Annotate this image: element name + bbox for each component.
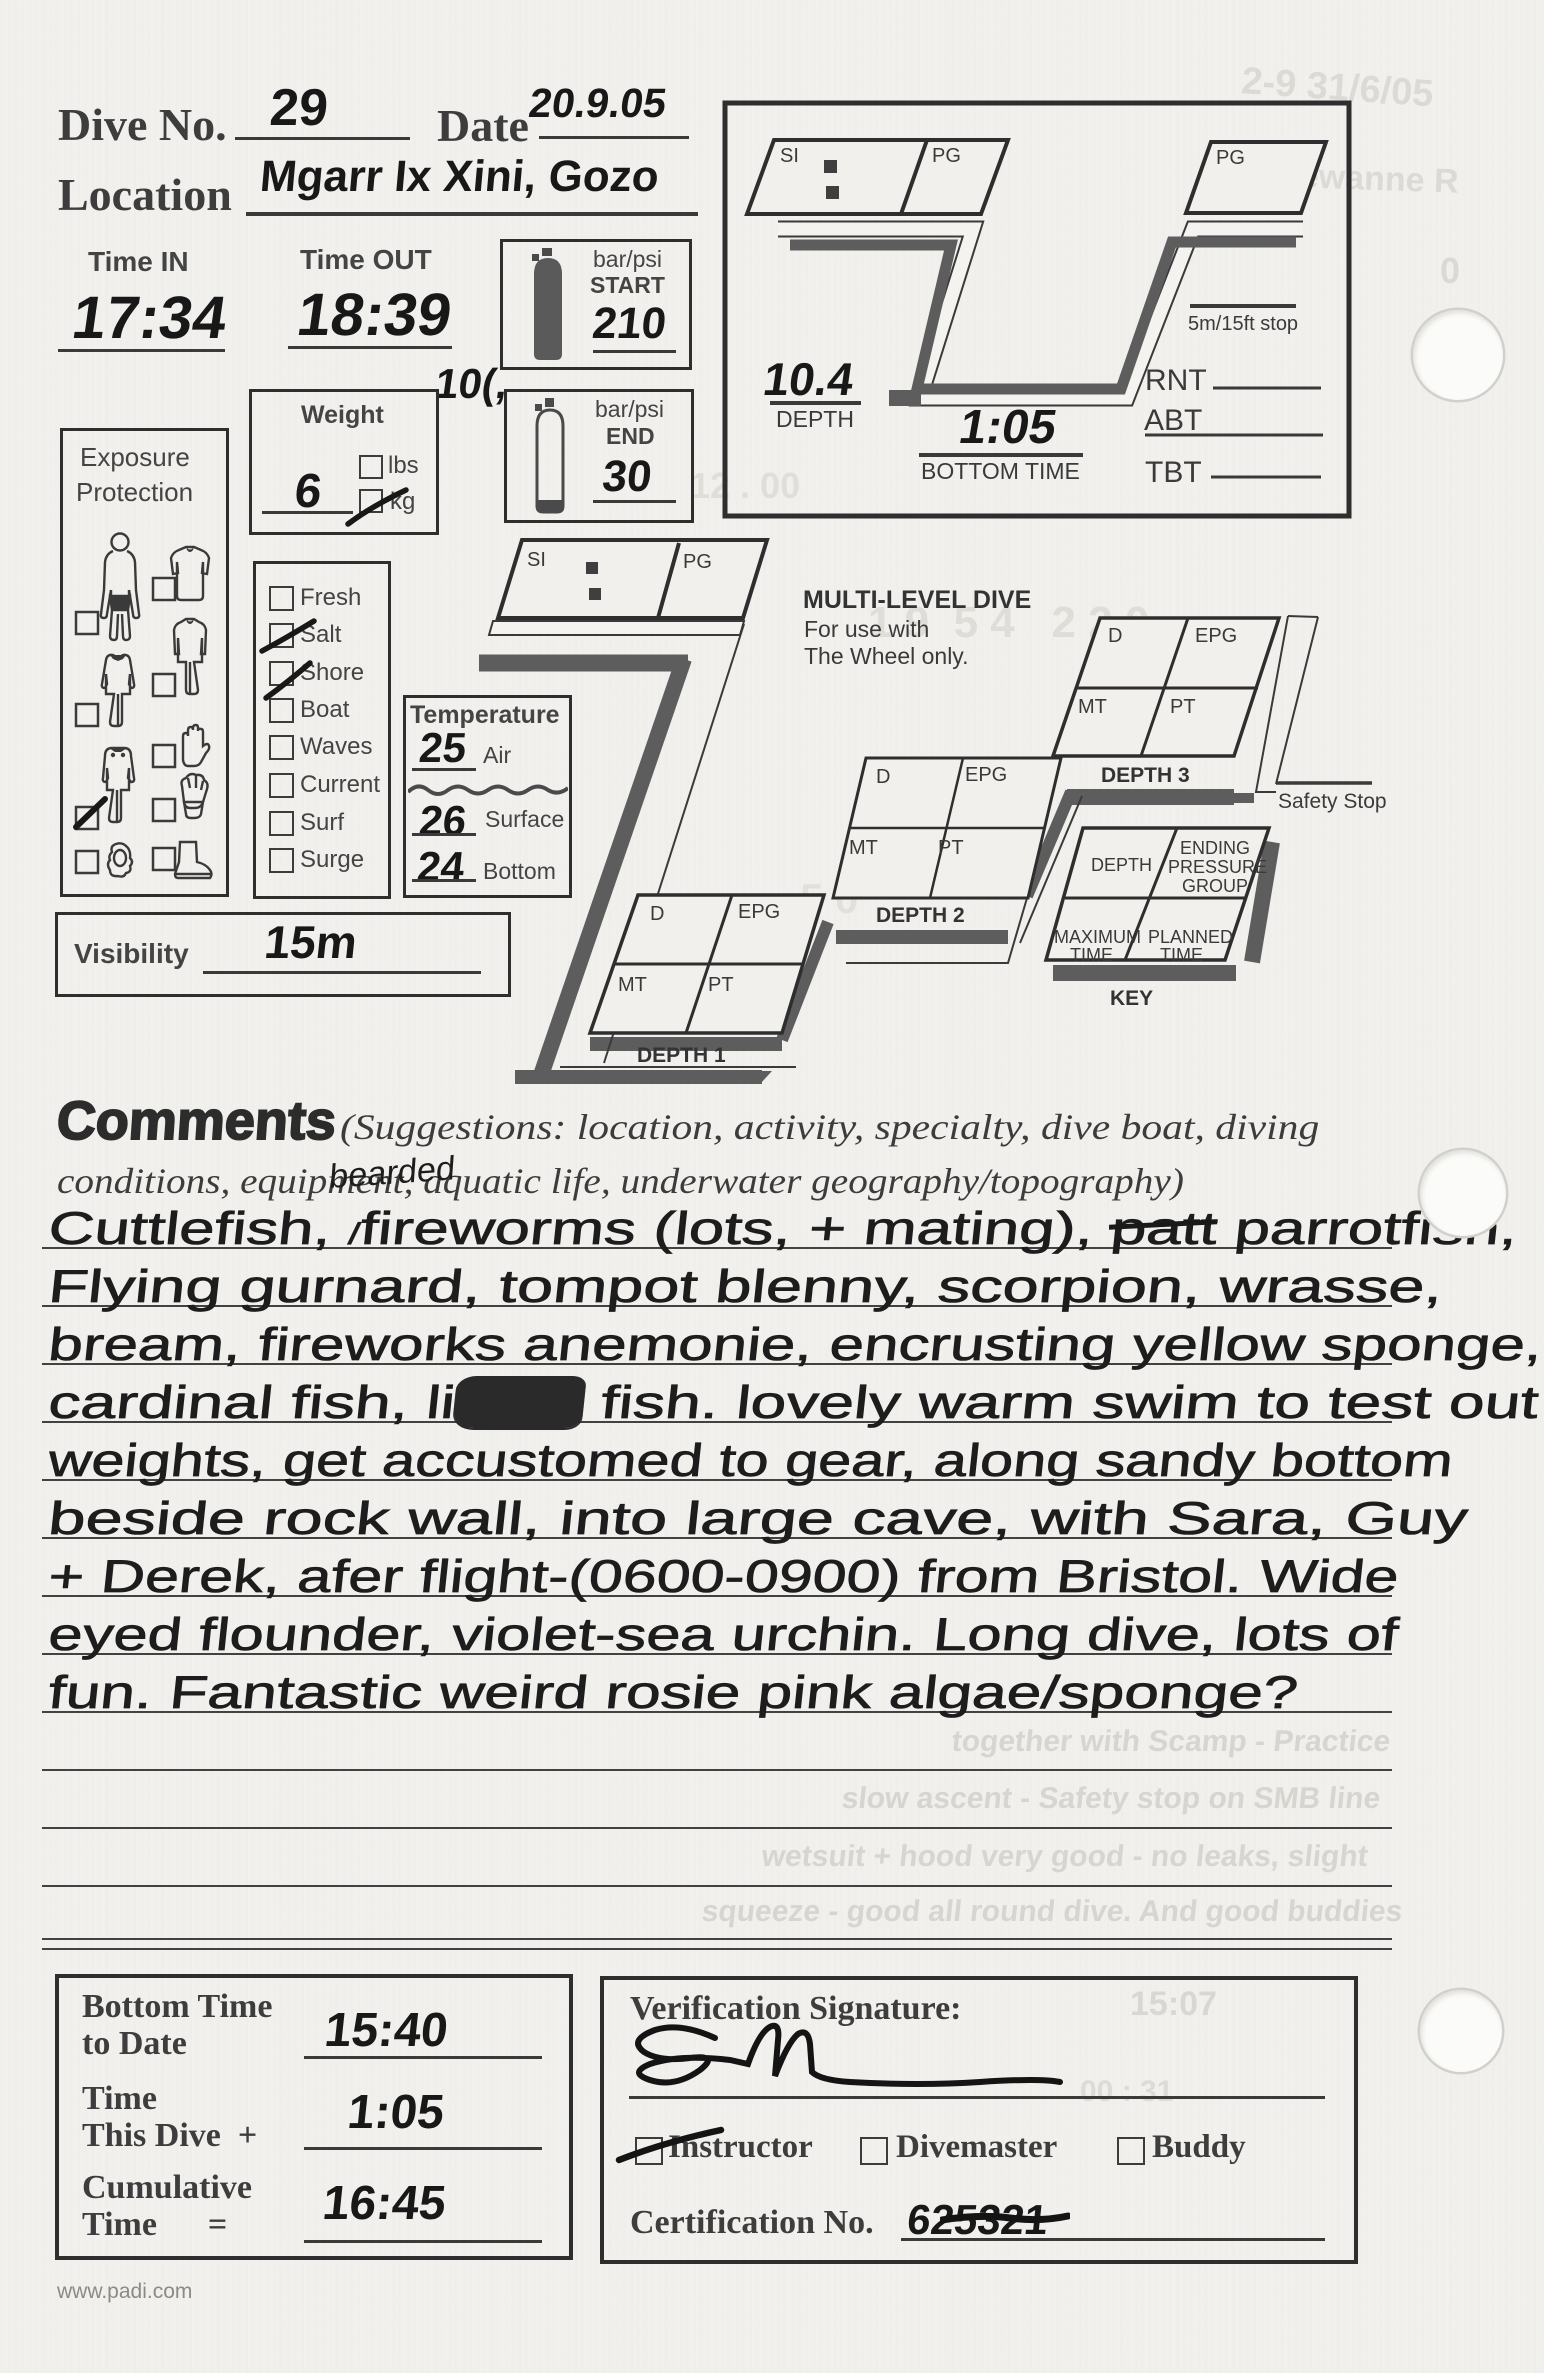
svg-text:PT: PT — [708, 974, 734, 996]
svg-text:PG: PG — [1216, 147, 1245, 169]
svg-text:D: D — [650, 903, 664, 925]
svg-text:D: D — [876, 766, 890, 788]
svg-text:DEPTH: DEPTH — [776, 406, 854, 432]
svg-text:EPG: EPG — [965, 764, 1007, 786]
svg-text:D: D — [1108, 625, 1122, 647]
svg-text:EPG: EPG — [1195, 625, 1237, 647]
svg-text:MAXIMUM: MAXIMUM — [1054, 927, 1141, 947]
svg-text:PG: PG — [683, 551, 712, 573]
svg-text:DEPTH: DEPTH — [1091, 855, 1152, 875]
svg-text:PT: PT — [1170, 696, 1196, 718]
svg-text:GROUP: GROUP — [1182, 876, 1248, 896]
svg-text:MT: MT — [849, 837, 878, 859]
svg-text:PG: PG — [932, 145, 961, 167]
svg-text:TIME: TIME — [1160, 945, 1203, 965]
svg-text:PLANNED: PLANNED — [1148, 927, 1233, 947]
svg-text:TBT: TBT — [1145, 456, 1202, 489]
svg-text:MULTI-LEVEL DIVE: MULTI-LEVEL DIVE — [803, 586, 1031, 614]
svg-text:For use with: For use with — [804, 616, 929, 642]
svg-text:PT: PT — [938, 837, 964, 859]
svg-text:The Wheel only.: The Wheel only. — [804, 643, 968, 669]
svg-text:PRESSURE: PRESSURE — [1168, 857, 1267, 877]
svg-text:RNT: RNT — [1145, 364, 1207, 397]
svg-text:DEPTH 3: DEPTH 3 — [1101, 764, 1190, 787]
svg-text:DEPTH 1: DEPTH 1 — [637, 1044, 726, 1067]
svg-text:KEY: KEY — [1110, 987, 1153, 1010]
svg-text:EPG: EPG — [738, 901, 780, 923]
svg-text:ENDING: ENDING — [1180, 838, 1250, 858]
svg-text:MT: MT — [618, 974, 647, 996]
svg-text:SI: SI — [780, 145, 799, 167]
svg-text:SI: SI — [527, 549, 546, 571]
svg-text:DEPTH 2: DEPTH 2 — [876, 904, 965, 927]
svg-text:BOTTOM TIME: BOTTOM TIME — [921, 458, 1080, 484]
svg-text:TIME: TIME — [1070, 945, 1113, 965]
svg-text:ABT: ABT — [1144, 404, 1202, 437]
svg-text:5m/15ft stop: 5m/15ft stop — [1188, 313, 1298, 335]
svg-text:Safety Stop: Safety Stop — [1278, 790, 1387, 813]
svg-text:MT: MT — [1078, 696, 1107, 718]
